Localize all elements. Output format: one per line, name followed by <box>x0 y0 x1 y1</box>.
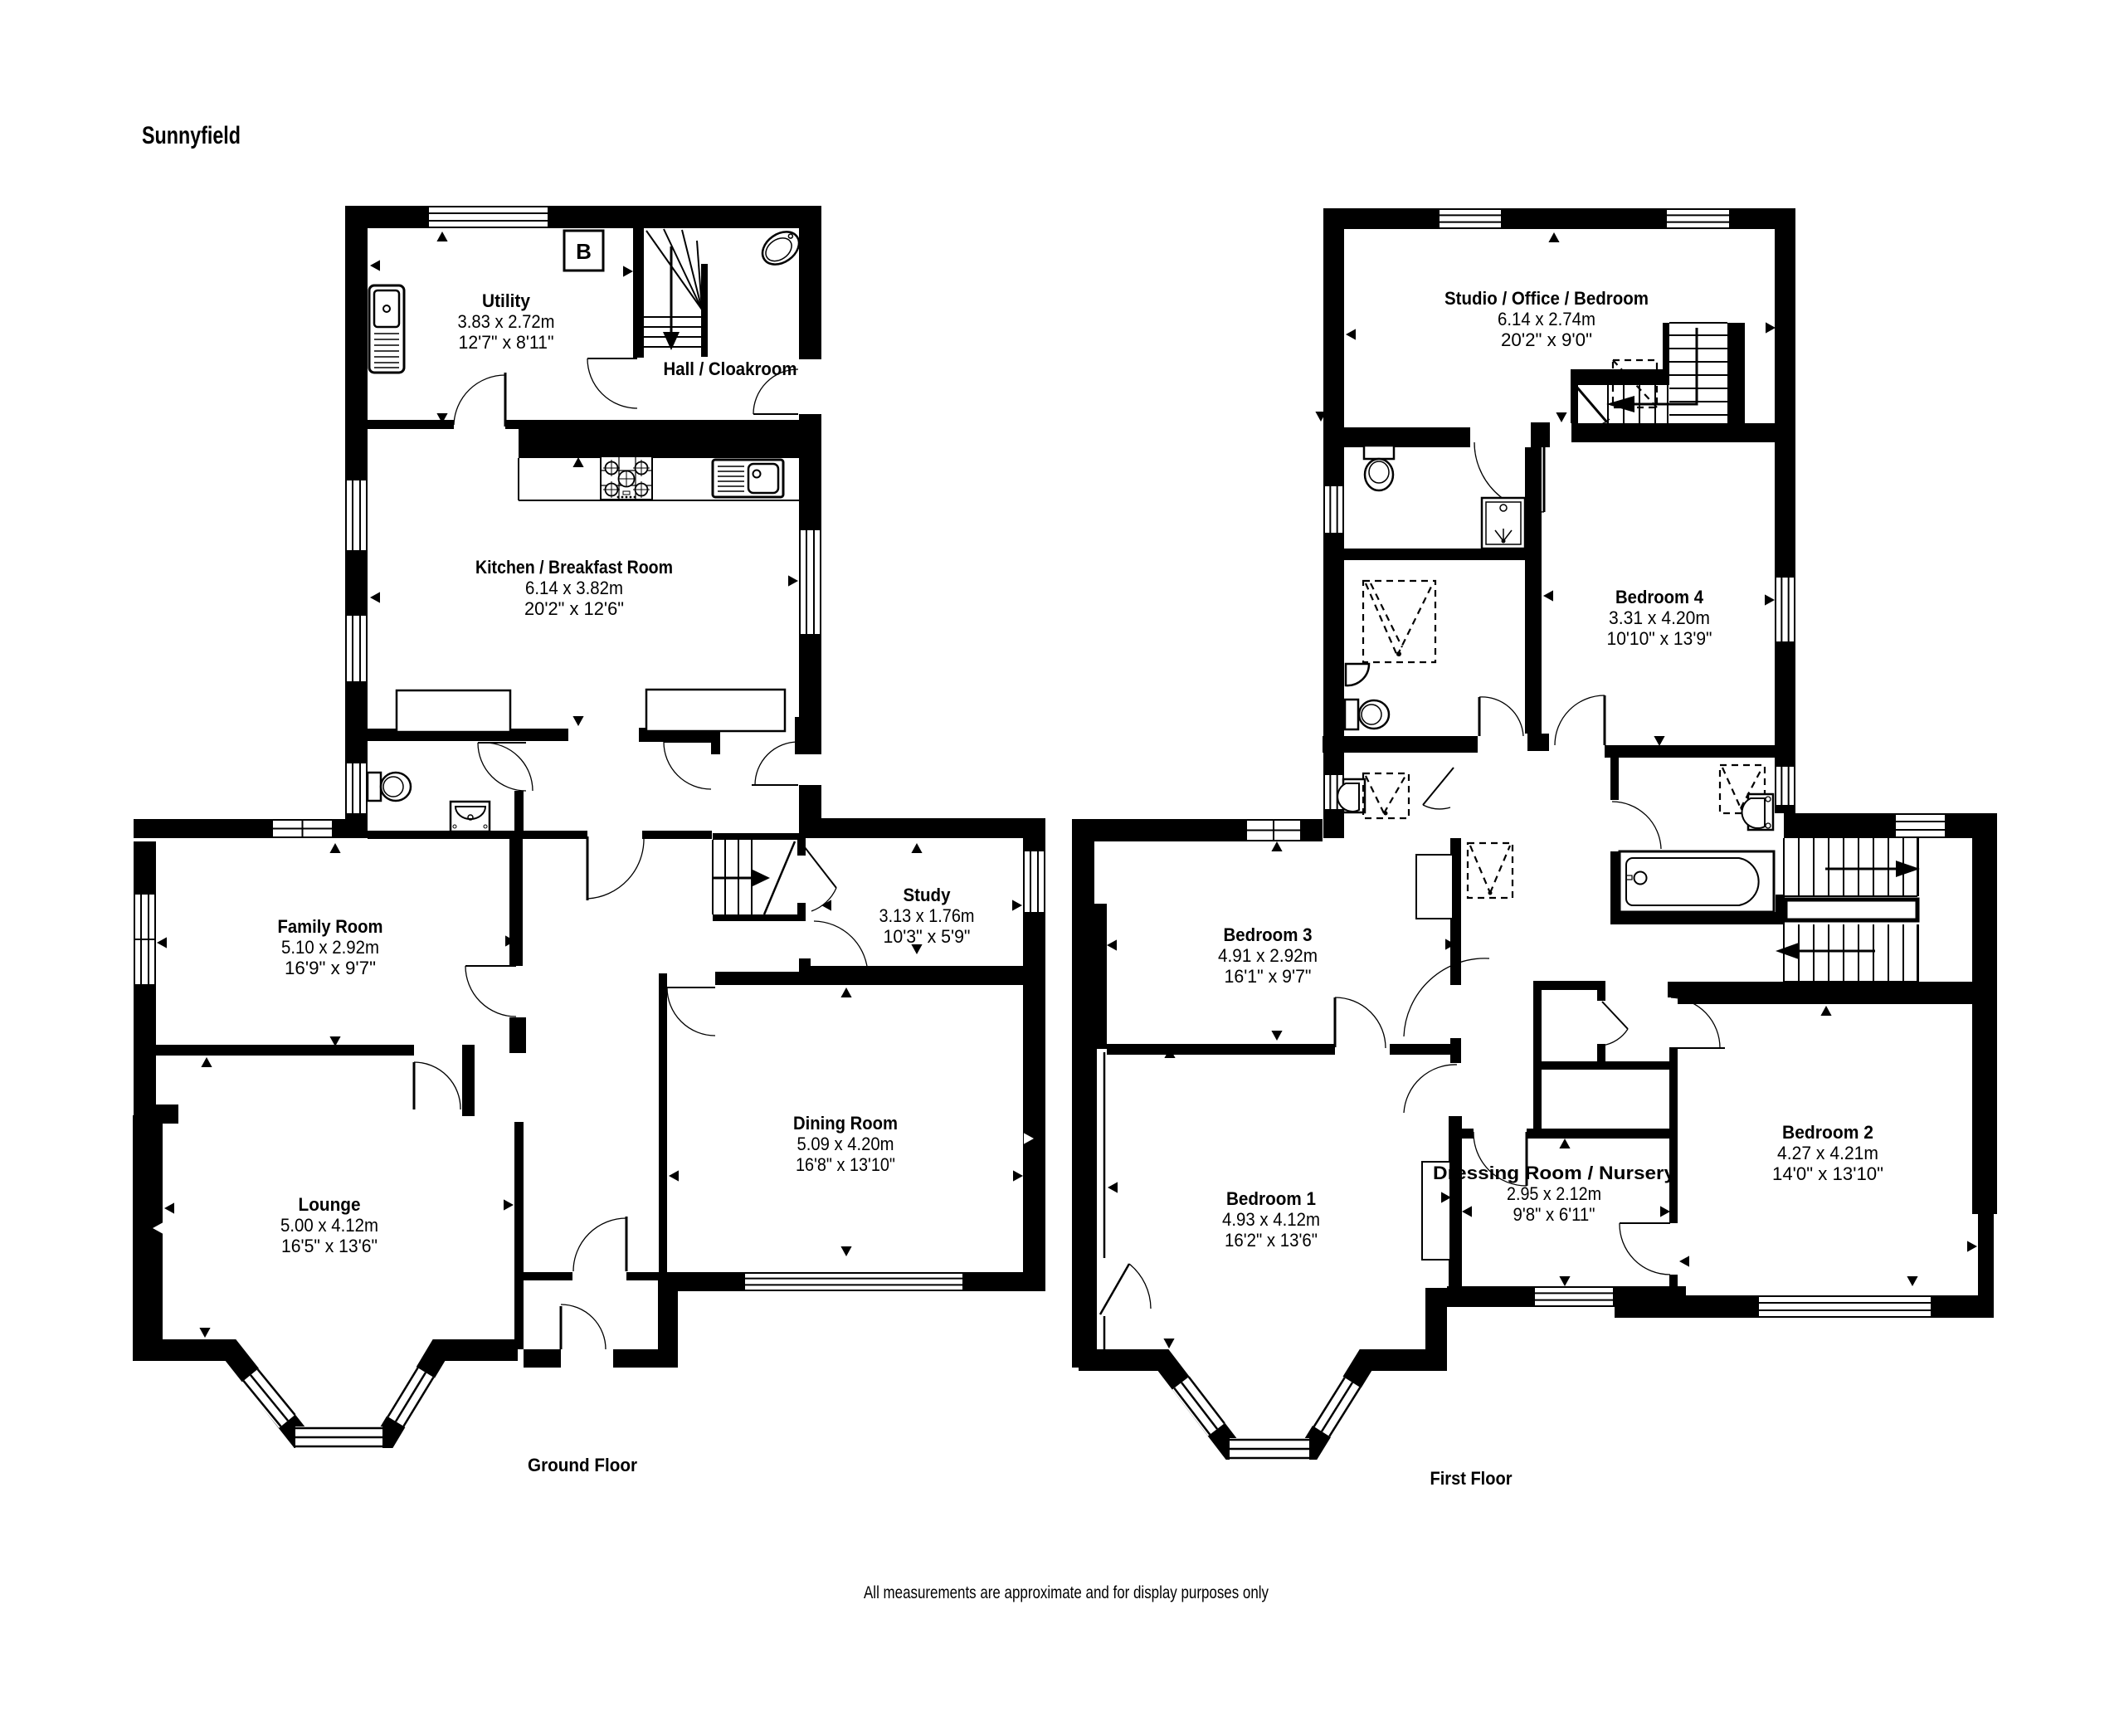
svg-text:10'10" x 13'9": 10'10" x 13'9" <box>1607 628 1712 649</box>
svg-text:16'8" x 13'10": 16'8" x 13'10" <box>796 1154 895 1175</box>
svg-text:16'1" x 9'7": 16'1" x 9'7" <box>1225 966 1312 987</box>
svg-text:6.14 x 2.74m: 6.14 x 2.74m <box>1498 309 1595 329</box>
svg-text:20'2" x 12'6": 20'2" x 12'6" <box>524 598 624 619</box>
svg-text:Dining Room: Dining Room <box>793 1113 898 1134</box>
svg-text:B: B <box>576 239 592 264</box>
svg-text:12'7" x 8'11": 12'7" x 8'11" <box>459 332 554 353</box>
svg-text:Studio / Office / Bedroom: Studio / Office / Bedroom <box>1444 288 1649 309</box>
svg-text:4.93 x 4.12m: 4.93 x 4.12m <box>1222 1209 1320 1230</box>
svg-text:2.95 x 2.12m: 2.95 x 2.12m <box>1507 1183 1601 1204</box>
svg-text:Dressing Room / Nursery: Dressing Room / Nursery <box>1433 1163 1676 1183</box>
svg-text:Utility: Utility <box>482 290 531 311</box>
svg-text:4.91 x 2.92m: 4.91 x 2.92m <box>1218 945 1318 966</box>
svg-text:Lounge: Lounge <box>299 1194 361 1215</box>
svg-text:5.00 x 4.12m: 5.00 x 4.12m <box>280 1215 378 1236</box>
svg-text:Bedroom 2: Bedroom 2 <box>1782 1122 1873 1143</box>
svg-text:14'0" x 13'10": 14'0" x 13'10" <box>1772 1163 1883 1184</box>
svg-text:3.31 x 4.20m: 3.31 x 4.20m <box>1609 607 1710 628</box>
svg-text:6.14 x 3.82m: 6.14 x 3.82m <box>525 578 623 598</box>
svg-text:Ground Floor: Ground Floor <box>528 1455 637 1475</box>
svg-text:10'3" x 5'9": 10'3" x 5'9" <box>884 926 971 947</box>
svg-text:Hall / Cloakroom: Hall / Cloakroom <box>664 358 797 379</box>
svg-text:Family Room: Family Room <box>278 916 383 937</box>
svg-text:16'5" x 13'6": 16'5" x 13'6" <box>281 1236 378 1256</box>
svg-text:Study: Study <box>904 885 952 905</box>
svg-text:Bedroom 4: Bedroom 4 <box>1615 587 1704 607</box>
svg-text:Sunnyfield: Sunnyfield <box>142 122 241 149</box>
svg-text:5.09 x 4.20m: 5.09 x 4.20m <box>797 1134 894 1154</box>
svg-text:4.27 x 4.21m: 4.27 x 4.21m <box>1777 1143 1878 1163</box>
svg-text:First Floor: First Floor <box>1430 1468 1513 1489</box>
svg-text:All measurements are approxima: All measurements are approximate and for… <box>864 1583 1269 1602</box>
svg-text:16'9" x 9'7": 16'9" x 9'7" <box>285 958 376 978</box>
svg-text:3.13 x 1.76m: 3.13 x 1.76m <box>879 905 975 926</box>
svg-text:16'2" x 13'6": 16'2" x 13'6" <box>1225 1230 1318 1251</box>
svg-text:5.10 x 2.92m: 5.10 x 2.92m <box>281 937 379 958</box>
svg-text:Bedroom 3: Bedroom 3 <box>1224 924 1313 945</box>
svg-text:Bedroom 1: Bedroom 1 <box>1226 1188 1316 1209</box>
svg-text:9'8" x 6'11": 9'8" x 6'11" <box>1513 1204 1595 1225</box>
svg-text:20'2" x 9'0": 20'2" x 9'0" <box>1501 329 1592 350</box>
svg-text:Kitchen / Breakfast Room: Kitchen / Breakfast Room <box>475 557 673 578</box>
svg-text:3.83 x 2.72m: 3.83 x 2.72m <box>458 311 555 332</box>
